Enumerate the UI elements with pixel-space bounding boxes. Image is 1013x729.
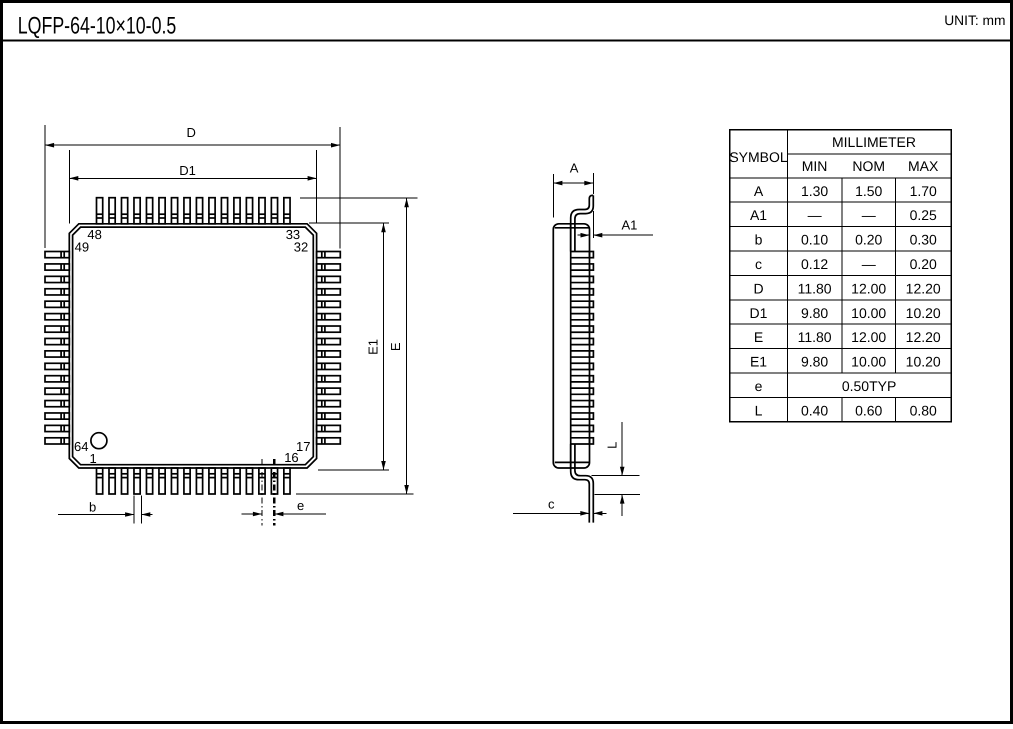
svg-text:9.80: 9.80 <box>801 354 828 370</box>
svg-text:A: A <box>570 161 579 176</box>
svg-text:NOM: NOM <box>852 158 885 174</box>
svg-text:c: c <box>755 256 762 272</box>
svg-text:D: D <box>187 125 196 140</box>
svg-text:64: 64 <box>74 439 88 454</box>
svg-text:0.25: 0.25 <box>910 207 937 223</box>
svg-text:LQFP-64-10×10-0.5: LQFP-64-10×10-0.5 <box>18 13 176 40</box>
svg-text:10.00: 10.00 <box>851 305 886 321</box>
svg-text:b: b <box>755 232 763 248</box>
svg-text:48: 48 <box>87 227 101 242</box>
svg-text:0.50TYP: 0.50TYP <box>842 378 896 394</box>
svg-text:10.20: 10.20 <box>906 354 941 370</box>
svg-text:12.20: 12.20 <box>906 280 941 296</box>
svg-text:e: e <box>755 378 763 394</box>
svg-text:—: — <box>862 256 876 272</box>
svg-text:D1: D1 <box>750 305 768 321</box>
svg-text:49: 49 <box>75 239 89 254</box>
svg-text:11.80: 11.80 <box>798 329 832 345</box>
svg-text:MIN: MIN <box>802 158 828 174</box>
svg-text:12.00: 12.00 <box>851 280 886 296</box>
svg-text:UNIT: mm: UNIT: mm <box>944 13 1005 28</box>
svg-text:10.20: 10.20 <box>906 305 941 321</box>
svg-text:1.30: 1.30 <box>801 183 828 199</box>
svg-text:—: — <box>808 207 822 223</box>
svg-text:D1: D1 <box>179 163 196 178</box>
svg-text:1: 1 <box>90 451 97 466</box>
svg-text:A1: A1 <box>750 207 767 223</box>
svg-text:L: L <box>755 402 763 418</box>
svg-text:0.60: 0.60 <box>855 402 882 418</box>
svg-text:9.80: 9.80 <box>801 305 828 321</box>
svg-text:—: — <box>862 207 876 223</box>
svg-text:32: 32 <box>294 239 308 254</box>
svg-text:e: e <box>297 498 304 513</box>
svg-text:16: 16 <box>284 450 298 465</box>
svg-text:1.50: 1.50 <box>855 183 882 199</box>
svg-text:MILLIMETER: MILLIMETER <box>832 134 916 150</box>
svg-text:0.30: 0.30 <box>910 232 937 248</box>
svg-text:0.20: 0.20 <box>910 256 937 272</box>
svg-text:SYMBOL: SYMBOL <box>729 149 788 165</box>
svg-text:b: b <box>89 500 96 515</box>
svg-text:E: E <box>388 342 403 351</box>
svg-text:L: L <box>605 442 620 449</box>
svg-text:A: A <box>754 183 764 199</box>
svg-text:D: D <box>753 280 763 296</box>
svg-text:1.70: 1.70 <box>910 183 937 199</box>
svg-text:0.12: 0.12 <box>801 256 828 272</box>
svg-text:0.80: 0.80 <box>910 402 937 418</box>
svg-text:11.80: 11.80 <box>798 280 832 296</box>
svg-text:A1: A1 <box>622 218 638 233</box>
svg-text:12.00: 12.00 <box>851 329 886 345</box>
svg-text:MAX: MAX <box>908 158 939 174</box>
svg-text:E1: E1 <box>366 339 381 355</box>
svg-text:E1: E1 <box>750 354 767 370</box>
svg-text:E: E <box>754 329 763 345</box>
svg-text:0.20: 0.20 <box>855 232 882 248</box>
svg-text:10.00: 10.00 <box>851 354 886 370</box>
svg-text:c: c <box>548 497 555 512</box>
svg-text:0.40: 0.40 <box>801 402 828 418</box>
svg-text:12.20: 12.20 <box>906 329 941 345</box>
svg-text:0.10: 0.10 <box>801 232 828 248</box>
